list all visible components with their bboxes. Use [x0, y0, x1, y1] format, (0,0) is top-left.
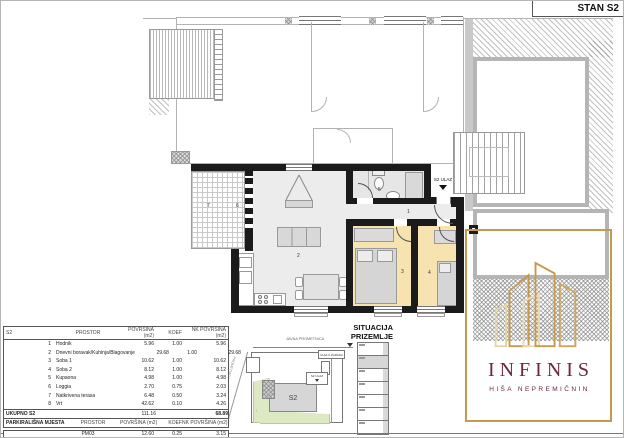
- entrance-arrow-icon: [439, 185, 447, 190]
- pendant-bar: [285, 200, 313, 208]
- entrance-label: S2 ULAZ: [425, 177, 461, 182]
- sofa: [277, 227, 321, 247]
- page-gutter: [613, 17, 623, 213]
- parking-net: 3.15: [182, 431, 228, 438]
- room-label-bedroom1: 3: [401, 270, 404, 275]
- stair-railing: [469, 147, 509, 177]
- col-area: POVRŠINA (m2): [120, 327, 154, 339]
- total-area: 111.16: [122, 410, 156, 418]
- wall: [245, 164, 253, 176]
- area-table: S2 PROSTOR POVRŠINA (m2) KOEF NK POVRŠIN…: [3, 326, 229, 438]
- stove-burner: [258, 295, 262, 299]
- room-label-hallway: 1: [407, 210, 410, 215]
- window-sill: [294, 313, 328, 317]
- table-row: 2Dnevni boravak/Kuhinja/Blagovanje29.681…: [4, 349, 228, 358]
- table-row: 8Vrt42.620.104.26: [4, 400, 228, 409]
- parking-slot-highlighted: [358, 356, 388, 369]
- room-label-loggia: 6: [236, 204, 239, 209]
- brand-tagline: HIŠA NEPREMIČNIN: [487, 386, 590, 393]
- drawing-sheet: 1 2 3 4 5 6 7 S2 ULAZ INFINIS HIŠA NEPRE…: [0, 0, 624, 438]
- parking-col-area: POVRŠINA (m2): [120, 419, 154, 427]
- parking-name: PM03: [54, 431, 120, 438]
- kitchen-appliance: [239, 271, 252, 284]
- glass-sliding-door: [245, 176, 253, 234]
- stove-burner: [264, 295, 268, 299]
- dining-table: [303, 274, 339, 300]
- pendant-lamp: [281, 173, 317, 203]
- parking-col-net: NK POVRŠINA (m2): [182, 419, 228, 427]
- table-total-row: UKUPNO S2 111.16 68.89: [4, 409, 228, 418]
- room-label-terrace: 7: [207, 204, 210, 209]
- parking-col-coef: KOEF: [154, 419, 182, 427]
- table-row: 3Soba 110.621.0010.62: [4, 357, 228, 366]
- neighbor-window: [299, 16, 341, 25]
- window: [374, 306, 402, 313]
- site-unit-s2: S2: [269, 383, 317, 412]
- parking-slot: [358, 343, 388, 356]
- wardrobe-bedroom1: [354, 228, 394, 242]
- wall-hatch: [149, 99, 169, 115]
- wall-hatch-square: [427, 18, 434, 25]
- site-upper-room: [246, 357, 260, 373]
- road-label: JAVNA PROMETNICA: [286, 337, 324, 341]
- buildings-logo-icon: [487, 241, 591, 357]
- neighbor-window: [441, 16, 463, 25]
- terrain-hatch: [589, 41, 615, 213]
- covered-terrace-floor: [191, 171, 245, 249]
- window: [286, 164, 312, 171]
- stove-burner: [258, 300, 262, 304]
- site-terrace-hatch: [262, 380, 275, 399]
- pillow: [357, 250, 373, 262]
- parking-col-space: PROSTOR: [66, 419, 120, 427]
- parking-section-label: PARKIRALIŠNA MJESTA: [4, 419, 66, 427]
- neighbor-pergola: [149, 29, 215, 99]
- wall-hatch-square: [369, 18, 376, 25]
- window-sill: [417, 313, 445, 317]
- wall: [411, 226, 418, 306]
- table-row: 6Loggia2.700.752.03: [4, 383, 228, 392]
- parking-slot: [358, 408, 388, 421]
- pillow: [439, 263, 451, 273]
- col-coef: KOEF: [154, 330, 182, 336]
- site-building-entrance-box: ULAZ U ZGRADU: [318, 350, 345, 359]
- road-line: [253, 347, 353, 348]
- site-parking-column: [357, 342, 389, 435]
- table-header-row: S2 PROSTOR POVRŠINA (m2) KOEF NK POVRŠIN…: [4, 327, 228, 340]
- neighbor-room: [313, 128, 393, 164]
- shower: [405, 172, 423, 201]
- parking-row-box: PM03 12.60 0.25 3.15: [3, 430, 229, 438]
- site-entrance-arrow-icon: [315, 379, 319, 382]
- wall-hatch-square: [285, 18, 292, 25]
- door-opening: [357, 198, 373, 204]
- wall-hatch: [171, 151, 190, 164]
- window-sill: [374, 313, 402, 317]
- parking-coef: 0.25: [154, 431, 182, 438]
- chair: [295, 290, 303, 300]
- col-net-area: NK POVRŠINA (m2): [182, 327, 228, 339]
- table-row: 7Natkrivena terasa6.480.503.24: [4, 392, 228, 401]
- parking-header-row: PARKIRALIŠNA MJESTA PROSTOR POVRŠINA (m2…: [4, 418, 228, 427]
- chair: [295, 277, 303, 287]
- table-row: 4Soba 28.121.008.12: [4, 366, 228, 375]
- kitchen-sink: [239, 257, 252, 268]
- entrance-door-opening: [436, 197, 451, 204]
- table-row: 5Kupaona4.981.004.98: [4, 374, 228, 383]
- brand-name: INFINIS: [483, 359, 594, 382]
- room-label-bathroom: 5: [378, 188, 381, 193]
- total-net-area: 68.89: [184, 410, 230, 418]
- col-space: PROSTOR: [54, 330, 120, 336]
- stove-burner: [264, 300, 268, 304]
- window: [417, 306, 445, 313]
- parking-slot: [358, 395, 388, 408]
- room-label-bedroom2: 4: [428, 271, 431, 276]
- window: [294, 306, 328, 313]
- site-plan-title: SITUACIJA PRIZEMLJE: [331, 324, 393, 341]
- neighbor-window: [384, 16, 426, 25]
- table-row: 1Hodnik5.961.005.96: [4, 340, 228, 349]
- total-label: UKUPNO S2: [4, 410, 122, 418]
- door-opening: [394, 219, 407, 226]
- col-id: S2: [4, 330, 54, 336]
- wall: [346, 219, 353, 313]
- wall: [245, 234, 253, 251]
- parking-area: 12.60: [120, 431, 154, 438]
- parking-slot: [358, 369, 388, 382]
- wall: [231, 249, 239, 306]
- pillow: [377, 250, 393, 262]
- kitchen-sink-2: [273, 295, 282, 304]
- parking-slot: [358, 382, 388, 395]
- wall: [346, 164, 353, 204]
- agency-logo: INFINIS HIŠA NEPREMIČNIN: [465, 229, 612, 422]
- room-label-living: 2: [297, 254, 300, 259]
- parking-row: PM03 12.60 0.25 3.15: [4, 431, 228, 438]
- site-building-line: [331, 352, 332, 423]
- sheet-title: STAN S2: [532, 1, 623, 17]
- pergola-divider: [214, 29, 223, 101]
